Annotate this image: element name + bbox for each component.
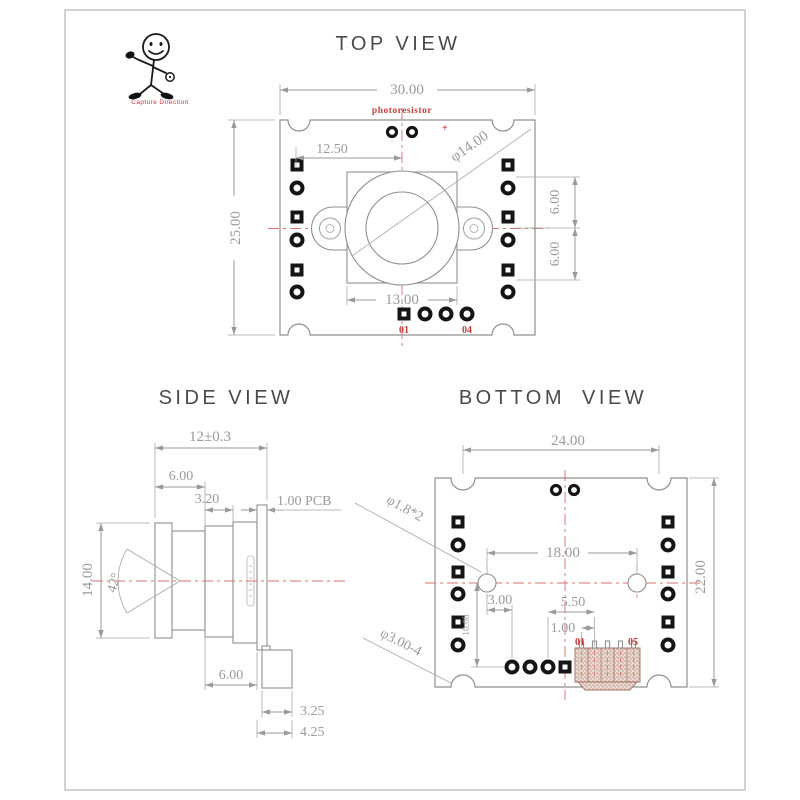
pcb-outline-bottom — [435, 478, 687, 687]
polarity-mark: + — [442, 123, 448, 134]
svg-text:14.00: 14.00 — [80, 563, 96, 597]
lens-mid-section — [205, 526, 233, 637]
stick-figure-body — [151, 60, 154, 85]
led-pad-ring — [503, 235, 514, 246]
mounting-hole-right — [628, 574, 646, 592]
connector-pin-stub — [619, 641, 623, 648]
svg-text:30.00: 30.00 — [390, 82, 424, 98]
led-pad-ring — [503, 183, 514, 194]
pin-label-last: 05 — [628, 637, 638, 648]
top-view: TOP VIEW photoresistor + — [228, 33, 580, 348]
bottom-view: BOTTOM VIEW — [355, 387, 719, 700]
connector-side — [262, 646, 292, 688]
svg-text:φ3.00-4: φ3.00-4 — [377, 626, 423, 659]
led-pad-square — [452, 566, 465, 579]
stick-figure-head — [143, 34, 169, 60]
led-pad-ring — [663, 589, 674, 600]
svg-text:12.50: 12.50 — [316, 142, 348, 157]
dim-pcb-thickness: 1.00 PCB — [241, 494, 341, 510]
connector-latch — [578, 682, 637, 690]
pin-pad-ring — [441, 309, 452, 320]
connector-footprint: 01 05 — [575, 637, 640, 690]
dim-connector-total: 4.25 — [257, 720, 325, 740]
svg-text:12±0.3: 12±0.3 — [189, 429, 231, 445]
svg-text:13.00: 13.00 — [385, 292, 419, 308]
dim-fov-angle: 42° — [105, 571, 125, 594]
side-view: SIDE VIEW 42° 12±0.3 — [80, 387, 348, 740]
photoresistor-hole — [552, 486, 561, 495]
led-pad-square — [291, 159, 304, 172]
led-pad-square — [662, 516, 675, 529]
pin-pad-square — [398, 308, 411, 321]
dim-board-width: 24.00 — [463, 433, 659, 474]
svg-text:3.20: 3.20 — [195, 492, 220, 507]
svg-text:6.00: 6.00 — [219, 668, 244, 683]
dim-board-height: 25.00 — [228, 120, 275, 335]
pcb-edge — [257, 505, 267, 650]
led-pad-ring — [292, 235, 303, 246]
pin-pad-ring — [420, 309, 431, 320]
pin-pad-ring — [543, 662, 554, 673]
svg-text:6.00: 6.00 — [548, 190, 563, 215]
lens-front-ring — [155, 523, 172, 638]
led-pad-square — [502, 264, 515, 277]
logo-caption: Capture Direction — [131, 99, 188, 106]
dim-board-height: 22.00 — [689, 478, 719, 687]
drawing-sheet: Capture Direction TOP VIEW photoresistor… — [0, 0, 800, 800]
svg-text:1.00: 1.00 — [551, 621, 576, 636]
led-pad-ring — [663, 640, 674, 651]
led-pad-ring — [453, 540, 464, 551]
led-pad-square — [502, 211, 515, 224]
svg-text:3.00: 3.00 — [488, 593, 513, 608]
led-pad-ring — [453, 640, 464, 651]
led-pad-square — [291, 211, 304, 224]
led-pad-ring — [503, 287, 514, 298]
photoresistor-label: photoresistor — [372, 106, 432, 116]
svg-text:24.00: 24.00 — [551, 433, 585, 449]
photoresistor-hole — [570, 486, 579, 495]
svg-text:φ1.8*2: φ1.8*2 — [384, 493, 426, 525]
svg-text:6.00: 6.00 — [169, 469, 194, 484]
svg-text:18.00: 18.00 — [546, 545, 580, 561]
bottom-view-title: BOTTOM VIEW — [459, 387, 647, 409]
stick-figure-legs — [140, 85, 164, 94]
led-pad-square — [662, 566, 675, 579]
lens-dot — [169, 76, 171, 78]
led-pad-square — [452, 516, 465, 529]
stick-figure-smile — [149, 51, 163, 54]
connector-pin-stub — [606, 641, 610, 648]
svg-text:4.25: 4.25 — [300, 725, 325, 740]
led-pad-square — [662, 616, 675, 629]
svg-text:10.08: 10.08 — [462, 614, 472, 636]
photoresistor-hole — [408, 128, 417, 137]
led-pad-ring — [292, 287, 303, 298]
top-view-title: TOP VIEW — [335, 33, 460, 55]
mounting-hole-left — [478, 574, 496, 592]
pin-label-last: 04 — [462, 325, 472, 336]
dim-barrel: 3.20 — [195, 492, 233, 522]
pin-pad-ring — [462, 309, 473, 320]
pin-pad-square — [559, 661, 572, 674]
stick-figure-eye — [150, 42, 153, 46]
svg-text:3.25: 3.25 — [300, 704, 325, 719]
dim-connector-depth: 3.25 — [262, 691, 325, 719]
led-pad-square — [502, 159, 515, 172]
lens-barrel — [172, 531, 205, 630]
svg-text:22.00: 22.00 — [693, 560, 709, 594]
led-pad-ring — [453, 589, 464, 600]
svg-text:6.00: 6.00 — [548, 242, 563, 267]
stick-figure-arm-right — [153, 67, 166, 73]
svg-text:1.00 PCB: 1.00 PCB — [277, 494, 331, 509]
svg-text:25.00: 25.00 — [228, 211, 244, 245]
led-pad-square — [291, 264, 304, 277]
pin-pad-ring — [507, 662, 518, 673]
technical-drawing: Capture Direction TOP VIEW photoresistor… — [0, 0, 800, 800]
led-pad-ring — [292, 183, 303, 194]
svg-text:5.50: 5.50 — [561, 595, 586, 610]
side-view-title: SIDE VIEW — [159, 387, 294, 409]
stick-figure-eye — [160, 42, 163, 46]
led-pad-ring — [663, 540, 674, 551]
photoresistor-hole — [388, 128, 397, 137]
pin-label-first: 01 — [399, 325, 409, 336]
pin-pad-ring — [525, 662, 536, 673]
pin-label-first: 01 — [575, 637, 585, 648]
capture-direction-logo: Capture Direction — [125, 34, 189, 106]
